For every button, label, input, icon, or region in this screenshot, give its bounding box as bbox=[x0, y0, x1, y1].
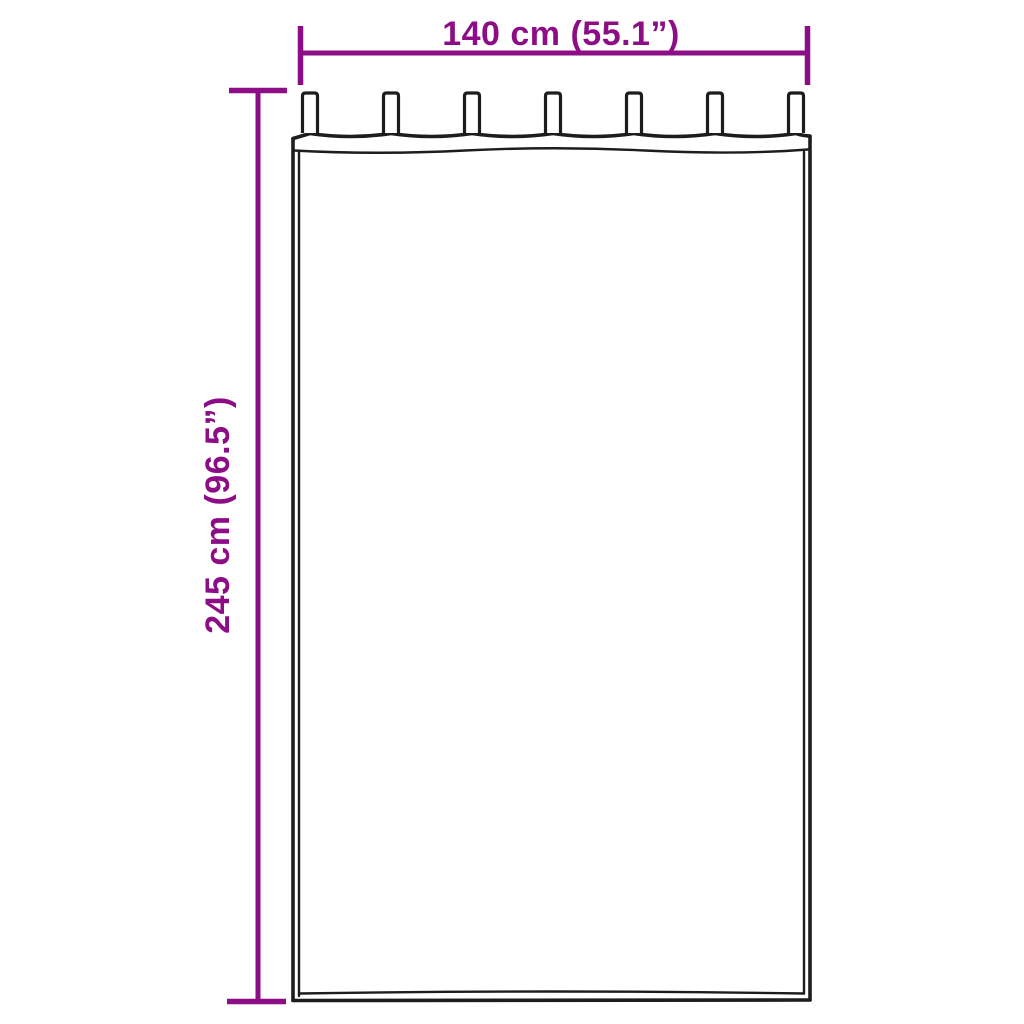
curtain-illustration bbox=[293, 93, 810, 1001]
curtain-bottom-edge bbox=[293, 1000, 810, 1001]
curtain-tab bbox=[384, 93, 399, 133]
curtain-tab bbox=[546, 93, 561, 133]
width-dimension: 140 cm (55.1”) bbox=[300, 15, 808, 85]
curtain-dimension-diagram: 140 cm (55.1”) 245 cm (96.5”) bbox=[0, 0, 1024, 1024]
width-dimension-label: 140 cm (55.1”) bbox=[442, 15, 680, 53]
height-dimension-label: 245 cm (96.5”) bbox=[199, 396, 237, 634]
diagram-canvas: 140 cm (55.1”) 245 cm (96.5”) bbox=[0, 0, 1024, 1024]
curtain-tabs bbox=[303, 93, 804, 133]
curtain-tab bbox=[627, 93, 642, 133]
curtain-top-edge bbox=[293, 134, 810, 139]
curtain-tab bbox=[708, 93, 723, 133]
curtain-tab bbox=[465, 93, 480, 133]
height-dimension: 245 cm (96.5”) bbox=[199, 88, 287, 1004]
curtain-tab bbox=[303, 93, 318, 133]
curtain-tab bbox=[789, 93, 804, 133]
curtain-header-seam bbox=[294, 148, 808, 153]
curtain-bottom-hem-line bbox=[299, 992, 804, 994]
